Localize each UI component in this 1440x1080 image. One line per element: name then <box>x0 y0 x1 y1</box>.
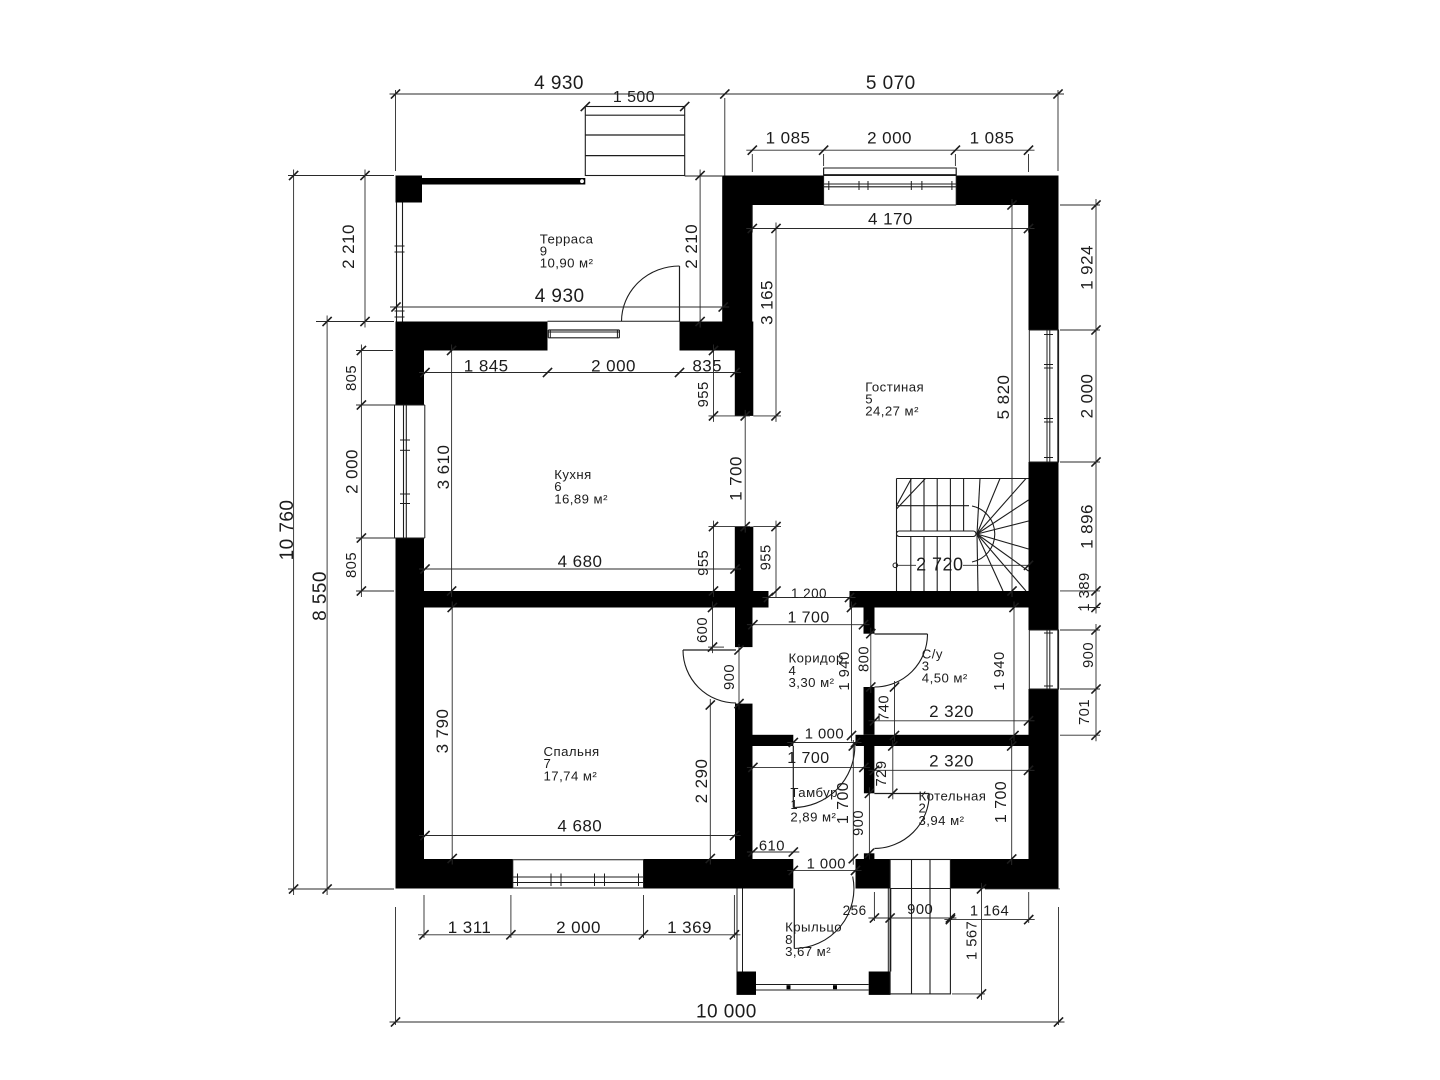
svg-text:701: 701 <box>1077 699 1093 725</box>
svg-text:10 760: 10 760 <box>277 500 298 561</box>
svg-text:729: 729 <box>874 760 890 786</box>
svg-text:835: 835 <box>692 357 722 376</box>
svg-text:2 210: 2 210 <box>682 224 701 269</box>
svg-text:805: 805 <box>344 365 360 391</box>
svg-text:3,30 м²: 3,30 м² <box>789 675 835 690</box>
svg-text:Спальня: Спальня <box>544 744 600 759</box>
svg-text:1 000: 1 000 <box>807 857 846 873</box>
svg-text:2 720: 2 720 <box>916 555 963 575</box>
svg-text:1 700: 1 700 <box>787 750 829 767</box>
svg-text:16,89 м²: 16,89 м² <box>554 491 608 506</box>
svg-text:3 610: 3 610 <box>434 445 453 490</box>
svg-text:Крыльцо: Крыльцо <box>785 920 842 935</box>
svg-text:1 500: 1 500 <box>613 89 655 106</box>
svg-text:1 085: 1 085 <box>970 129 1015 148</box>
svg-text:5 820: 5 820 <box>994 375 1013 420</box>
svg-text:1 085: 1 085 <box>766 129 811 148</box>
svg-text:2 000: 2 000 <box>591 357 636 376</box>
svg-text:17,74 м²: 17,74 м² <box>544 768 598 783</box>
svg-text:10 000: 10 000 <box>696 1002 757 1023</box>
svg-text:900: 900 <box>907 902 933 918</box>
svg-text:1 200: 1 200 <box>791 586 827 601</box>
svg-text:1 311: 1 311 <box>448 918 492 937</box>
svg-text:955: 955 <box>696 550 712 576</box>
svg-text:4 680: 4 680 <box>558 552 603 571</box>
svg-text:900: 900 <box>1081 642 1097 668</box>
svg-text:2 000: 2 000 <box>343 449 362 494</box>
svg-text:4 170: 4 170 <box>868 210 913 229</box>
svg-text:1 369: 1 369 <box>667 918 712 937</box>
svg-text:1 845: 1 845 <box>464 357 509 376</box>
svg-text:2 000: 2 000 <box>867 129 912 148</box>
svg-text:1 000: 1 000 <box>805 726 844 742</box>
svg-text:5 070: 5 070 <box>866 73 916 94</box>
svg-text:3,94 м²: 3,94 м² <box>919 813 965 828</box>
svg-text:1 389: 1 389 <box>1077 572 1093 611</box>
svg-text:1 896: 1 896 <box>1078 504 1097 549</box>
svg-text:Гостиная: Гостиная <box>865 379 924 394</box>
svg-text:1 924: 1 924 <box>1078 245 1097 290</box>
svg-text:4 930: 4 930 <box>534 73 584 94</box>
svg-text:8 550: 8 550 <box>310 571 331 621</box>
svg-text:1 164: 1 164 <box>970 904 1009 920</box>
svg-text:2 210: 2 210 <box>339 224 358 269</box>
svg-text:256: 256 <box>843 903 867 918</box>
svg-text:955: 955 <box>759 544 775 570</box>
svg-text:Котельная: Котельная <box>919 789 987 804</box>
svg-text:1 700: 1 700 <box>993 781 1010 823</box>
svg-text:805: 805 <box>344 552 360 578</box>
svg-text:2 320: 2 320 <box>929 702 974 721</box>
svg-text:955: 955 <box>696 381 712 407</box>
svg-text:1 700: 1 700 <box>726 456 745 501</box>
svg-text:2 000: 2 000 <box>556 918 601 937</box>
svg-text:Терраса: Терраса <box>540 231 594 246</box>
svg-text:2 290: 2 290 <box>692 759 711 804</box>
svg-text:2,89 м²: 2,89 м² <box>790 809 836 824</box>
svg-text:3 790: 3 790 <box>433 709 452 754</box>
svg-text:1 700: 1 700 <box>787 610 829 627</box>
svg-text:4 680: 4 680 <box>557 817 602 836</box>
svg-text:3,67 м²: 3,67 м² <box>785 944 831 959</box>
svg-text:3 165: 3 165 <box>758 280 777 325</box>
svg-text:4,50 м²: 4,50 м² <box>922 671 968 686</box>
svg-text:610: 610 <box>759 838 785 854</box>
svg-text:24,27 м²: 24,27 м² <box>865 404 919 419</box>
svg-text:2 000: 2 000 <box>1078 374 1097 419</box>
svg-text:1 567: 1 567 <box>965 921 981 960</box>
svg-text:900: 900 <box>722 664 738 690</box>
svg-text:600: 600 <box>695 617 711 643</box>
svg-text:1 940: 1 940 <box>992 651 1008 690</box>
svg-text:900: 900 <box>851 810 867 836</box>
svg-text:Коридор: Коридор <box>789 651 844 666</box>
svg-text:800: 800 <box>857 646 873 672</box>
svg-text:2 320: 2 320 <box>929 751 974 770</box>
svg-text:4 930: 4 930 <box>535 286 585 307</box>
svg-text:10,90 м²: 10,90 м² <box>540 256 594 271</box>
